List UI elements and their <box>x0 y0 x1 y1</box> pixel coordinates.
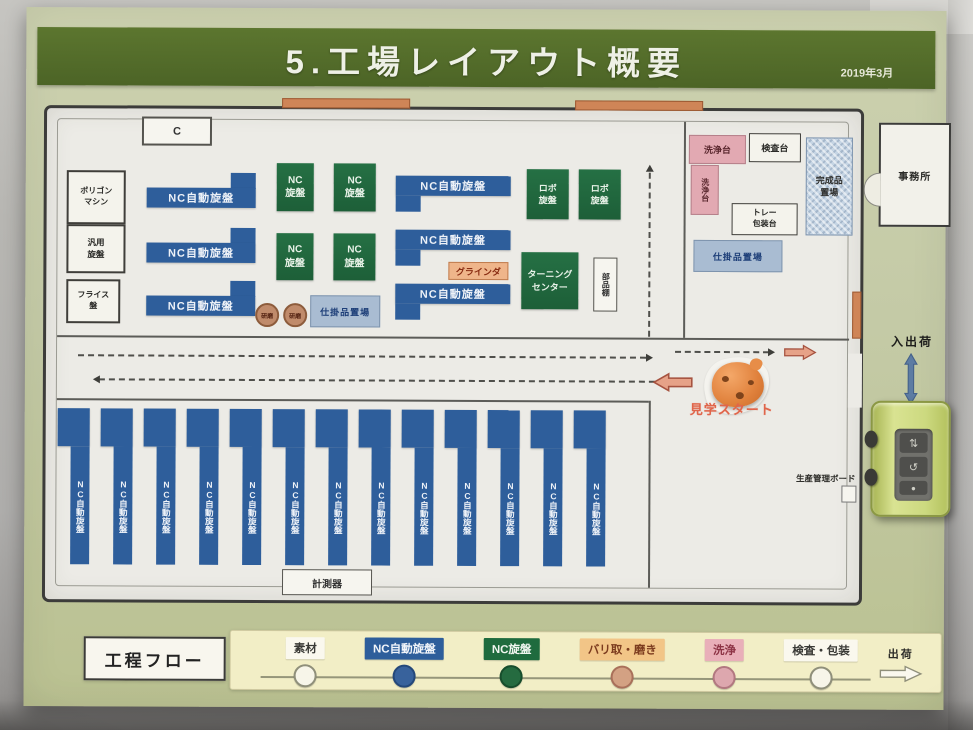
date-label: 2019年3月 <box>841 65 894 81</box>
process-step-dot <box>500 665 523 688</box>
clip-walker-icon: ⇅ <box>900 433 928 453</box>
nc-auto-lathe-vertical: NC自動旋盤 <box>444 410 477 568</box>
machine-cap <box>273 409 305 447</box>
machine-label: NC自動旋盤 <box>70 450 89 562</box>
nc-auto-lathe-vertical: NC自動旋盤 <box>487 410 520 568</box>
machine-label: NC自動旋盤 <box>586 452 605 564</box>
wall-edge <box>948 0 973 730</box>
process-step-label: NC旋盤 <box>484 638 540 660</box>
process-step: NC自動旋盤 <box>365 637 444 687</box>
process-flow-legend: 素材NC自動旋盤NC旋盤バリ取・磨き洗浄検査・包装 出荷 <box>230 630 942 693</box>
title-bar: 5.工場レイアウト概要 2019年3月 <box>37 27 935 89</box>
machine-label: NC自動旋盤 <box>543 452 562 564</box>
machine-cap <box>101 408 133 446</box>
machine-label: NC自動旋盤 <box>414 452 433 564</box>
machine-cap <box>316 409 348 447</box>
process-step-label: 素材 <box>286 637 325 659</box>
top-wall-door <box>282 98 410 109</box>
machine-label: NC自動旋盤 <box>500 452 519 564</box>
machine-label: NC自動旋盤 <box>285 451 304 563</box>
machine-label: NC自動旋盤 <box>371 452 390 564</box>
process-step: 素材 <box>286 637 325 687</box>
machine-cap <box>402 410 434 448</box>
machine-cap <box>574 410 606 448</box>
ship-label: 出荷 <box>875 646 927 662</box>
process-step-label: 洗浄 <box>705 639 744 661</box>
process-step-dot <box>294 664 317 687</box>
in-out-shipping-label: 入出荷 <box>891 333 933 350</box>
page-title: 5.工場レイアウト概要 <box>37 34 935 86</box>
process-flow-title: 工程フロー <box>84 636 226 681</box>
machine-label: NC自動旋盤 <box>457 452 476 564</box>
machine-cap <box>58 408 90 446</box>
production-board-box <box>841 486 856 503</box>
nc-auto-lathe-vertical: NC自動旋盤 <box>143 409 176 567</box>
clip-dot-icon: ● <box>899 481 927 495</box>
production-board-label: 生産管理ボード <box>763 472 855 484</box>
clip-knob <box>865 431 878 448</box>
office-door-arc <box>864 173 881 207</box>
right-wall-door-marker <box>852 292 861 339</box>
nc-auto-lathe-vertical: NC自動旋盤 <box>186 409 219 567</box>
process-step: 検査・包装 <box>784 639 858 689</box>
machine-label: NC自動旋盤 <box>328 451 347 563</box>
nc-auto-lathe-vertical: NC自動旋盤 <box>401 410 434 568</box>
measuring-instruments: 計測器 <box>282 569 372 595</box>
machine-cap <box>531 410 563 448</box>
factory-layout-poster: 5.工場レイアウト概要 2019年3月 C ポリゴン マシン 汎用 旋盤 フライ… <box>23 7 946 710</box>
machine-label: NC自動旋盤 <box>199 451 218 563</box>
in-out-shipping-arrow <box>903 353 919 405</box>
process-step: 洗浄 <box>705 639 744 689</box>
ship-step: 出荷 <box>875 646 927 688</box>
nc-auto-lathe-vertical: NC自動旋盤 <box>272 409 305 567</box>
flow-steps: 素材NC自動旋盤NC旋盤バリ取・磨き洗浄検査・包装 <box>286 637 858 689</box>
board-clip-object: ⇅ ↺ ● <box>870 401 951 517</box>
machine-cap <box>187 409 219 447</box>
machine-cap <box>230 409 262 447</box>
nc-auto-lathe-vertical: NC自動旋盤 <box>573 410 606 568</box>
process-step-label: NC自動旋盤 <box>365 637 444 659</box>
clip-panel: ⇅ ↺ ● <box>894 429 932 501</box>
clip-knob <box>864 469 877 486</box>
machine-cap <box>359 409 391 447</box>
machine-label: NC自動旋盤 <box>156 451 175 563</box>
process-step-dot <box>393 665 416 688</box>
machine-cap <box>445 410 477 448</box>
process-step: バリ取・磨き <box>580 638 665 688</box>
machine-label: NC自動旋盤 <box>113 450 132 562</box>
machine-cap <box>144 409 176 447</box>
process-step-dot <box>713 666 736 689</box>
bottom-machine-row: NC自動旋盤NC自動旋盤NC自動旋盤NC自動旋盤NC自動旋盤NC自動旋盤NC自動… <box>45 108 861 603</box>
process-step: NC旋盤 <box>484 638 540 688</box>
process-step-dot <box>611 666 634 689</box>
clip-dial-icon: ↺ <box>899 457 927 477</box>
floor-plan: C ポリゴン マシン 汎用 旋盤 フライス 盤 NC自動旋盤 NC自動旋盤 NC… <box>42 105 864 606</box>
c-label-box: C <box>142 117 212 146</box>
nc-auto-lathe-vertical: NC自動旋盤 <box>315 409 348 567</box>
nc-auto-lathe-vertical: NC自動旋盤 <box>358 409 391 567</box>
machine-cap <box>488 410 520 448</box>
process-step-label: 検査・包装 <box>784 639 858 661</box>
top-wall-door <box>575 100 703 111</box>
right-wall-door-gap <box>848 354 862 408</box>
nc-auto-lathe-vertical: NC自動旋盤 <box>229 409 262 567</box>
nc-auto-lathe-vertical: NC自動旋盤 <box>100 408 133 566</box>
machine-label: NC自動旋盤 <box>242 451 261 563</box>
nc-auto-lathe-vertical: NC自動旋盤 <box>530 410 563 568</box>
process-step-label: バリ取・磨き <box>580 638 665 660</box>
nc-auto-lathe-vertical: NC自動旋盤 <box>57 408 90 566</box>
ship-arrow <box>878 665 924 683</box>
office: 事務所 <box>879 123 951 227</box>
process-step-dot <box>809 666 832 689</box>
